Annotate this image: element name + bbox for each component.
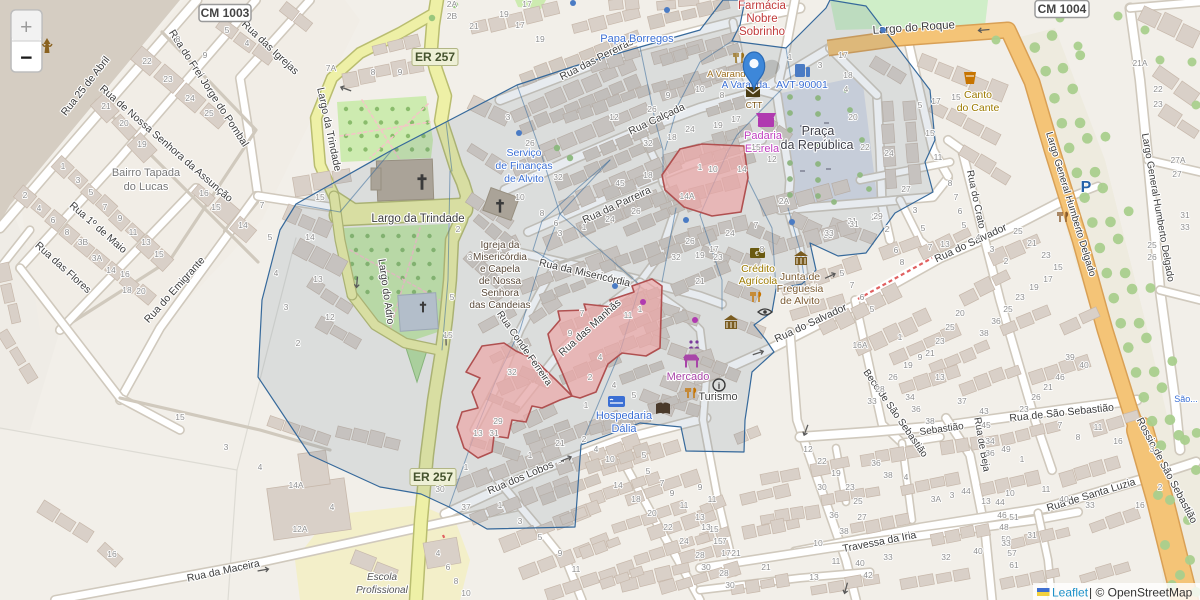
svg-text:7: 7: [580, 308, 585, 318]
svg-text:17: 17: [522, 0, 532, 9]
svg-text:15: 15: [154, 249, 164, 259]
svg-text:11: 11: [1042, 484, 1051, 494]
svg-text:13: 13: [935, 372, 945, 382]
svg-text:21: 21: [925, 348, 935, 358]
svg-text:i: i: [718, 381, 721, 391]
svg-text:23: 23: [1153, 99, 1163, 109]
svg-text:do Lucas: do Lucas: [124, 181, 169, 193]
svg-text:36: 36: [911, 404, 921, 414]
svg-text:48: 48: [999, 522, 1009, 532]
svg-text:23: 23: [1041, 250, 1051, 260]
svg-text:8: 8: [1076, 432, 1081, 442]
svg-text:5: 5: [918, 100, 923, 110]
svg-text:2: 2: [588, 372, 593, 382]
svg-text:7: 7: [754, 220, 759, 230]
svg-text:21: 21: [555, 438, 565, 448]
svg-text:19: 19: [535, 34, 545, 44]
svg-text:33: 33: [824, 228, 834, 238]
svg-text:2: 2: [885, 224, 890, 234]
svg-text:−: −: [20, 47, 32, 70]
svg-text:1: 1: [498, 500, 503, 510]
svg-text:1: 1: [528, 450, 533, 460]
svg-text:9: 9: [203, 50, 208, 60]
svg-text:7: 7: [928, 242, 933, 252]
svg-text:27: 27: [1172, 169, 1182, 179]
svg-text:3: 3: [518, 516, 523, 526]
svg-text:3: 3: [990, 244, 995, 254]
svg-text:21: 21: [761, 562, 771, 572]
svg-text:20: 20: [848, 112, 858, 122]
svg-text:46: 46: [1055, 372, 1065, 382]
svg-text:17: 17: [1043, 274, 1053, 284]
svg-text:Canto: Canto: [964, 89, 992, 101]
svg-text:da República: da República: [781, 138, 854, 152]
svg-text:13: 13: [695, 512, 705, 522]
svg-text:29: 29: [493, 416, 503, 426]
svg-text:18: 18: [643, 170, 653, 180]
svg-text:9: 9: [666, 90, 671, 100]
svg-text:16: 16: [1113, 436, 1123, 446]
svg-text:25: 25: [1003, 304, 1013, 314]
svg-text:40: 40: [973, 546, 983, 556]
svg-text:24: 24: [884, 148, 894, 158]
svg-text:13: 13: [473, 428, 483, 438]
svg-text:34: 34: [985, 436, 995, 446]
svg-text:14A: 14A: [288, 480, 303, 490]
svg-text:17: 17: [731, 114, 741, 124]
svg-text:38: 38: [979, 328, 989, 338]
svg-text:5: 5: [962, 220, 967, 230]
svg-text:9: 9: [558, 548, 563, 558]
svg-text:12: 12: [767, 154, 777, 164]
svg-text:2A: 2A: [447, 0, 458, 9]
svg-text:9: 9: [118, 213, 123, 223]
svg-text:19: 19: [831, 468, 841, 478]
svg-text:6: 6: [860, 292, 865, 302]
svg-text:3A: 3A: [92, 253, 103, 263]
svg-text:11: 11: [572, 564, 581, 574]
svg-text:3: 3: [224, 442, 229, 452]
svg-text:15: 15: [951, 92, 961, 102]
svg-text:14: 14: [613, 480, 623, 490]
svg-text:14: 14: [106, 265, 116, 275]
svg-text:5: 5: [632, 390, 637, 400]
svg-text:30: 30: [435, 484, 445, 494]
svg-text:e Capela: e Capela: [480, 264, 520, 275]
svg-text:9: 9: [670, 488, 675, 498]
svg-text:20: 20: [136, 286, 146, 296]
svg-text:5: 5: [646, 466, 651, 476]
svg-text:4: 4: [258, 462, 263, 472]
svg-text:24: 24: [685, 124, 695, 134]
svg-text:17: 17: [515, 20, 525, 30]
svg-text:22: 22: [663, 522, 673, 532]
svg-text:16: 16: [199, 188, 209, 198]
svg-text:29: 29: [873, 211, 883, 221]
svg-text:23: 23: [1015, 292, 1025, 302]
svg-text:11: 11: [1094, 422, 1103, 432]
svg-text:11: 11: [832, 556, 841, 566]
svg-text:21: 21: [1043, 382, 1053, 392]
svg-text:2B: 2B: [447, 11, 458, 21]
svg-text:33: 33: [867, 396, 877, 406]
svg-text:Bairro Tapada: Bairro Tapada: [112, 167, 181, 179]
svg-text:51: 51: [1009, 512, 1019, 522]
svg-text:40: 40: [1059, 494, 1069, 504]
svg-text:13: 13: [940, 239, 950, 249]
svg-text:8: 8: [540, 208, 545, 218]
svg-text:42: 42: [863, 570, 873, 580]
svg-text:1: 1: [788, 52, 793, 62]
svg-text:Nobre: Nobre: [746, 13, 777, 25]
svg-text:18: 18: [122, 285, 132, 295]
svg-text:das Candeias: das Candeias: [469, 300, 530, 311]
svg-text:15: 15: [315, 192, 325, 202]
svg-text:27: 27: [857, 512, 867, 522]
svg-text:20: 20: [647, 508, 657, 518]
svg-text:32: 32: [553, 172, 563, 182]
svg-text:8: 8: [900, 257, 905, 267]
svg-text:3A: 3A: [931, 494, 942, 504]
svg-text:+: +: [20, 16, 32, 39]
svg-text:CTT: CTT: [746, 100, 763, 110]
svg-text:36: 36: [829, 510, 839, 520]
svg-text:33: 33: [1180, 222, 1190, 232]
svg-text:18: 18: [631, 494, 641, 504]
svg-text:4: 4: [436, 548, 441, 558]
svg-text:43: 43: [979, 406, 989, 416]
svg-text:2A: 2A: [779, 196, 790, 206]
svg-text:33: 33: [883, 552, 893, 562]
svg-text:16: 16: [120, 269, 130, 279]
svg-text:| © OpenStreetMap: | © OpenStreetMap: [1089, 586, 1193, 600]
svg-text:28: 28: [695, 550, 705, 560]
svg-text:15: 15: [443, 330, 453, 340]
svg-text:1: 1: [898, 332, 903, 342]
svg-text:8: 8: [65, 227, 70, 237]
svg-text:5: 5: [642, 450, 647, 460]
svg-text:17: 17: [931, 96, 941, 106]
svg-text:7A: 7A: [326, 63, 337, 73]
svg-text:44: 44: [961, 486, 971, 496]
svg-text:Farmácia: Farmácia: [738, 0, 787, 12]
svg-text:Igreja da: Igreja da: [481, 240, 520, 251]
svg-text:de Alvito: de Alvito: [504, 173, 544, 185]
svg-text:9: 9: [398, 67, 403, 77]
svg-text:14: 14: [238, 220, 248, 230]
svg-text:26: 26: [685, 236, 695, 246]
svg-text:P: P: [1081, 179, 1092, 196]
svg-text:2: 2: [296, 338, 301, 348]
svg-text:6: 6: [894, 245, 899, 255]
svg-text:15: 15: [713, 536, 723, 546]
svg-text:2: 2: [23, 190, 28, 200]
svg-text:Hospedaria: Hospedaria: [596, 410, 653, 422]
svg-text:5: 5: [840, 268, 845, 278]
svg-text:16: 16: [1135, 500, 1145, 510]
svg-text:23: 23: [1019, 404, 1029, 414]
svg-text:19: 19: [713, 120, 723, 130]
svg-text:21: 21: [1027, 238, 1037, 248]
svg-text:5: 5: [921, 223, 926, 233]
svg-text:7: 7: [103, 202, 108, 212]
svg-text:ER 257: ER 257: [413, 470, 453, 484]
svg-text:33: 33: [1001, 538, 1011, 548]
svg-text:22: 22: [1153, 84, 1163, 94]
svg-text:24: 24: [185, 93, 195, 103]
svg-text:12: 12: [325, 312, 335, 322]
svg-text:do Cante: do Cante: [957, 102, 1000, 114]
svg-text:38: 38: [925, 416, 935, 426]
svg-text:15: 15: [175, 412, 185, 422]
svg-text:9: 9: [698, 482, 703, 492]
svg-text:Praça: Praça: [802, 124, 835, 138]
svg-text:Dália: Dália: [611, 423, 637, 435]
svg-text:3: 3: [506, 112, 511, 122]
svg-text:de Alvito: de Alvito: [780, 295, 820, 307]
svg-text:AVT-90001: AVT-90001: [776, 79, 828, 91]
svg-text:Senhora: Senhora: [481, 288, 519, 299]
svg-text:11: 11: [129, 227, 138, 237]
svg-text:Serviço: Serviço: [506, 147, 541, 159]
svg-text:1: 1: [61, 161, 66, 171]
svg-text:31: 31: [1027, 530, 1037, 540]
svg-text:de Finanças: de Finanças: [495, 160, 552, 172]
svg-text:32: 32: [671, 252, 681, 262]
svg-text:Sobrinho: Sobrinho: [739, 26, 785, 38]
svg-text:26: 26: [525, 138, 535, 148]
svg-text:46: 46: [997, 510, 1007, 520]
svg-text:8: 8: [454, 576, 459, 586]
svg-text:1: 1: [698, 162, 703, 172]
svg-text:21: 21: [695, 276, 705, 286]
svg-text:4: 4: [274, 268, 279, 278]
svg-text:4: 4: [598, 352, 603, 362]
svg-text:São...: São...: [1174, 394, 1198, 404]
svg-text:1: 1: [638, 304, 643, 314]
svg-text:45: 45: [615, 178, 625, 188]
svg-text:19: 19: [499, 9, 509, 19]
svg-text:17: 17: [838, 50, 848, 60]
svg-text:13: 13: [313, 274, 323, 284]
svg-text:14A: 14A: [679, 191, 694, 201]
svg-text:25: 25: [1013, 226, 1023, 236]
svg-text:ER 257: ER 257: [415, 50, 455, 64]
svg-text:€: €: [755, 251, 759, 258]
svg-text:15: 15: [1053, 262, 1063, 272]
svg-text:22: 22: [142, 56, 152, 66]
svg-text:10: 10: [605, 454, 615, 464]
svg-text:18: 18: [667, 132, 677, 142]
svg-text:25: 25: [853, 496, 863, 506]
svg-text:5: 5: [89, 187, 94, 197]
svg-text:8: 8: [720, 90, 725, 100]
svg-text:Padaria: Padaria: [744, 130, 783, 142]
svg-text:9: 9: [568, 328, 573, 338]
svg-text:7: 7: [260, 200, 265, 210]
svg-text:30: 30: [725, 580, 735, 590]
svg-text:23: 23: [163, 74, 173, 84]
svg-text:10: 10: [708, 164, 718, 174]
svg-text:30: 30: [701, 562, 711, 572]
svg-text:24: 24: [679, 536, 689, 546]
svg-text:4: 4: [844, 84, 849, 94]
svg-text:21: 21: [469, 21, 479, 31]
svg-text:21A: 21A: [1132, 58, 1147, 68]
svg-text:de Nossa: de Nossa: [479, 276, 522, 287]
svg-text:37: 37: [957, 396, 967, 406]
svg-text:3: 3: [284, 302, 289, 312]
svg-text:8: 8: [371, 67, 376, 77]
svg-text:2: 2: [582, 434, 587, 444]
svg-text:Junta de: Junta de: [780, 271, 820, 283]
svg-text:3: 3: [76, 175, 81, 185]
svg-text:19: 19: [137, 139, 147, 149]
svg-text:36: 36: [871, 458, 881, 468]
svg-text:30: 30: [817, 482, 827, 492]
svg-text:6: 6: [958, 206, 963, 216]
svg-text:16: 16: [107, 549, 117, 559]
svg-text:Agrícola: Agrícola: [739, 275, 778, 287]
svg-text:Mercado: Mercado: [667, 371, 710, 383]
svg-text:13: 13: [141, 237, 151, 247]
svg-text:15: 15: [925, 128, 935, 138]
svg-text:4: 4: [245, 38, 250, 48]
svg-text:7: 7: [660, 478, 665, 488]
svg-text:5: 5: [225, 25, 230, 35]
svg-text:Largo da Trindade: Largo da Trindade: [371, 213, 464, 225]
svg-text:12A: 12A: [292, 524, 307, 534]
svg-text:23: 23: [845, 482, 855, 492]
svg-text:19: 19: [695, 250, 705, 260]
svg-text:4: 4: [594, 444, 599, 454]
svg-text:CM 1003: CM 1003: [201, 6, 250, 20]
svg-text:Leaflet: Leaflet: [1052, 586, 1089, 600]
svg-text:39: 39: [1065, 352, 1075, 362]
svg-text:Profissional: Profissional: [356, 585, 408, 596]
svg-text:4: 4: [612, 380, 617, 390]
svg-text:23: 23: [935, 336, 945, 346]
svg-text:5: 5: [870, 304, 875, 314]
svg-text:20: 20: [955, 308, 965, 318]
svg-text:36: 36: [985, 448, 995, 458]
svg-text:3: 3: [1150, 444, 1155, 454]
svg-text:28: 28: [875, 384, 885, 394]
svg-text:Papa Borregos: Papa Borregos: [600, 33, 674, 45]
svg-text:11: 11: [708, 494, 717, 504]
svg-text:4: 4: [37, 203, 42, 213]
svg-text:22: 22: [817, 456, 827, 466]
svg-text:Turismo: Turismo: [698, 391, 737, 403]
svg-text:5: 5: [268, 232, 273, 242]
svg-text:11: 11: [624, 310, 633, 320]
svg-text:22: 22: [860, 142, 870, 152]
svg-text:8: 8: [760, 244, 765, 254]
svg-text:13: 13: [809, 572, 819, 582]
svg-text:27A: 27A: [1170, 155, 1185, 165]
svg-text:15: 15: [211, 202, 221, 212]
svg-text:33: 33: [1085, 500, 1095, 510]
svg-text:1: 1: [582, 222, 587, 232]
svg-text:10: 10: [813, 538, 823, 548]
svg-text:32: 32: [941, 552, 951, 562]
svg-text:3B: 3B: [78, 237, 89, 247]
svg-text:32: 32: [507, 367, 517, 377]
svg-text:7: 7: [1058, 420, 1063, 430]
svg-text:20: 20: [119, 118, 129, 128]
svg-text:40: 40: [1079, 360, 1089, 370]
svg-text:32: 32: [643, 138, 653, 148]
svg-text:40: 40: [855, 558, 865, 568]
svg-text:Escola: Escola: [367, 572, 397, 583]
svg-text:18: 18: [843, 70, 853, 80]
svg-text:4: 4: [330, 502, 335, 512]
svg-text:57: 57: [1007, 548, 1017, 558]
svg-text:25: 25: [945, 322, 955, 332]
svg-text:Crédito: Crédito: [741, 263, 775, 275]
svg-text:26: 26: [1031, 392, 1041, 402]
svg-text:24: 24: [605, 214, 615, 224]
svg-text:1: 1: [584, 400, 589, 410]
svg-text:5: 5: [538, 532, 543, 542]
svg-text:9: 9: [918, 352, 923, 362]
svg-text:24: 24: [725, 228, 735, 238]
svg-text:6: 6: [446, 562, 451, 572]
svg-text:49: 49: [1001, 444, 1011, 454]
svg-text:21: 21: [731, 548, 741, 558]
svg-text:14: 14: [305, 232, 315, 242]
svg-text:36: 36: [991, 316, 1001, 326]
svg-text:13: 13: [701, 522, 711, 532]
svg-text:12: 12: [609, 112, 619, 122]
svg-text:28: 28: [719, 568, 729, 578]
svg-text:45: 45: [981, 420, 991, 430]
svg-text:6: 6: [51, 215, 56, 225]
svg-text:8: 8: [176, 34, 181, 44]
svg-text:10: 10: [695, 84, 705, 94]
svg-text:3: 3: [558, 228, 563, 238]
svg-text:10: 10: [461, 588, 471, 598]
svg-text:38: 38: [883, 470, 893, 480]
svg-text:CM 1004: CM 1004: [1038, 2, 1087, 16]
svg-text:27: 27: [901, 184, 911, 194]
svg-text:5: 5: [450, 292, 455, 302]
svg-text:21: 21: [101, 101, 111, 111]
svg-text:26: 26: [647, 104, 657, 114]
svg-text:1: 1: [464, 462, 469, 472]
svg-text:31: 31: [1180, 210, 1190, 220]
svg-text:13: 13: [981, 496, 991, 506]
svg-text:3: 3: [913, 205, 918, 215]
svg-text:8: 8: [948, 178, 953, 188]
svg-text:19: 19: [1029, 282, 1039, 292]
svg-text:15: 15: [751, 142, 761, 152]
svg-text:16A: 16A: [852, 340, 867, 350]
svg-text:17: 17: [721, 548, 731, 558]
svg-text:11: 11: [680, 500, 689, 510]
svg-text:4: 4: [976, 232, 981, 242]
svg-text:25: 25: [1147, 240, 1157, 250]
svg-text:3: 3: [468, 252, 473, 262]
svg-text:14: 14: [737, 164, 747, 174]
svg-text:31: 31: [849, 219, 859, 229]
svg-text:34: 34: [905, 392, 915, 402]
svg-text:7: 7: [850, 280, 855, 290]
svg-text:Misericórdia: Misericórdia: [473, 252, 527, 263]
svg-text:44: 44: [995, 497, 1005, 507]
svg-text:2: 2: [1158, 482, 1163, 492]
svg-text:7: 7: [954, 192, 959, 202]
